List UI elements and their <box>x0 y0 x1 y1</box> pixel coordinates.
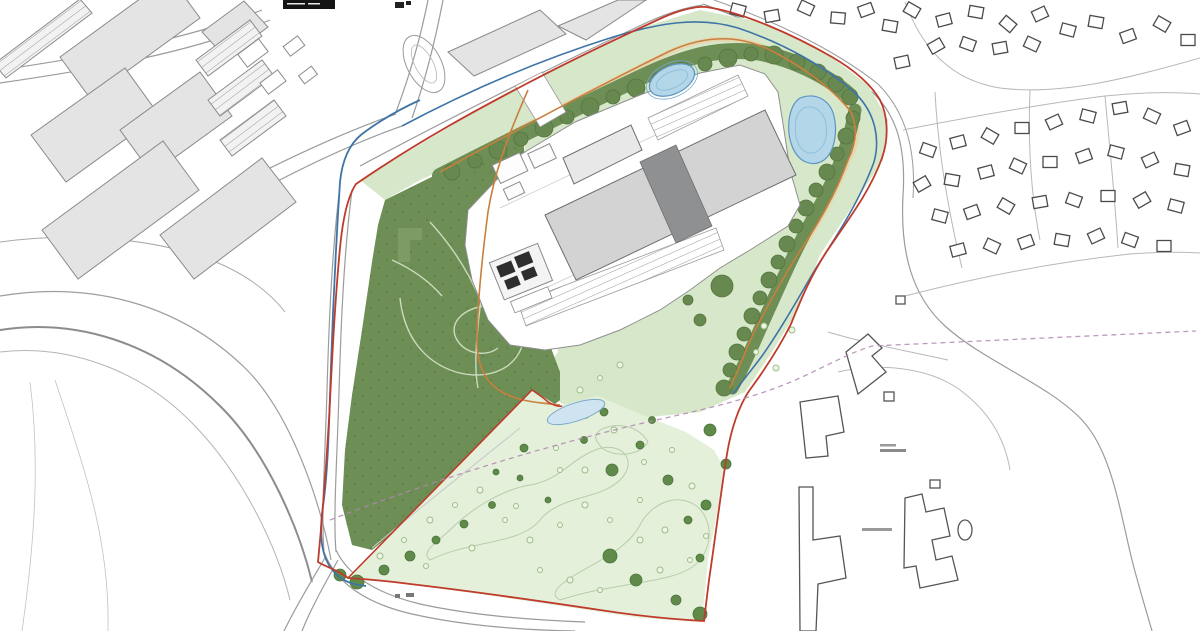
site-plan-map <box>0 0 1200 631</box>
farm-label <box>880 444 896 447</box>
attenuation-pond-east <box>789 96 836 164</box>
marker-label <box>395 594 400 598</box>
farm-label <box>862 528 892 531</box>
